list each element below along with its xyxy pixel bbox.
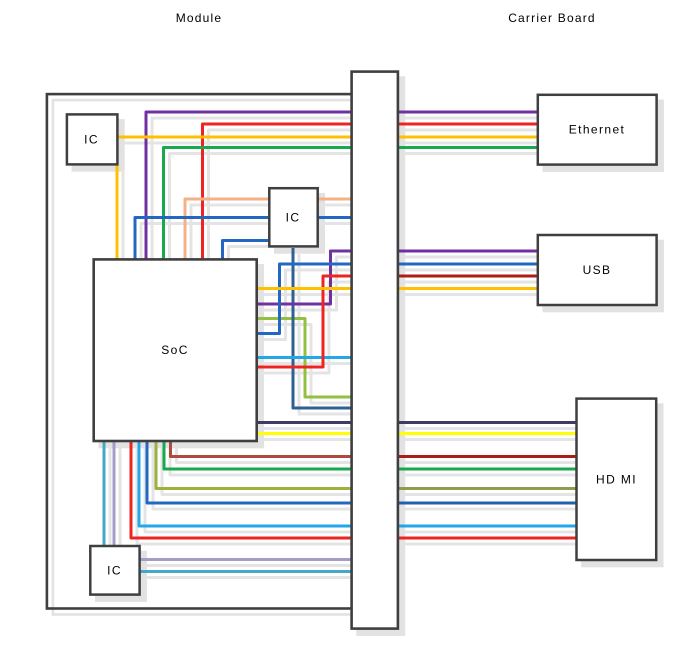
svg-text:Ethernet: Ethernet <box>569 123 626 137</box>
svg-text:SoC: SoC <box>161 343 189 357</box>
svg-text:USB: USB <box>583 263 612 277</box>
svg-text:IC: IC <box>286 210 301 224</box>
svg-text:HD MI: HD MI <box>596 472 637 486</box>
svg-text:IC: IC <box>84 132 99 146</box>
svg-text:IC: IC <box>107 563 122 577</box>
svg-text:Carrier Board: Carrier Board <box>508 11 596 25</box>
svg-text:Module: Module <box>176 11 223 25</box>
